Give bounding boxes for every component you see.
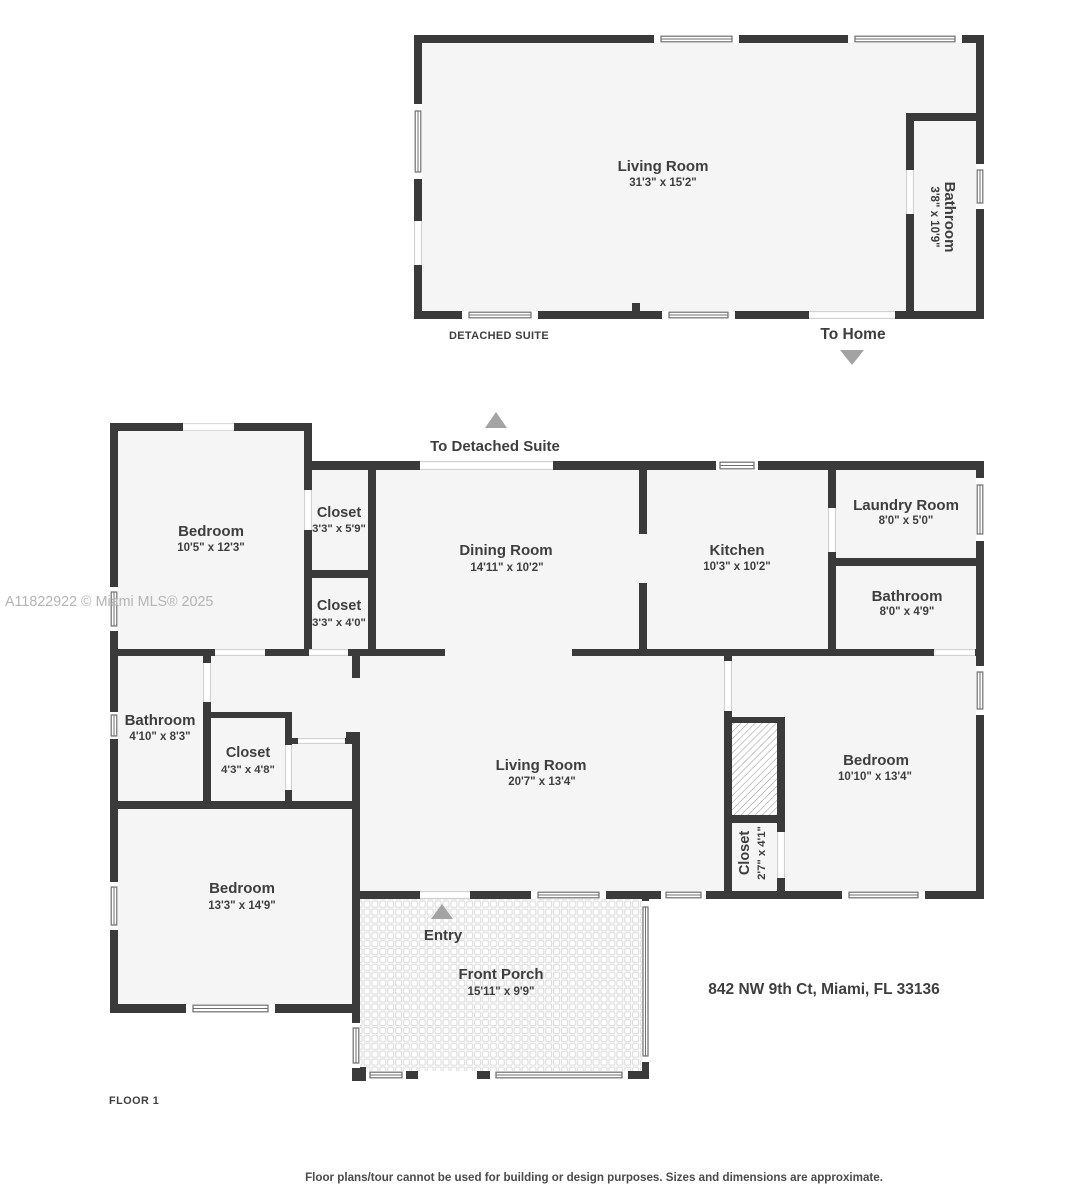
- svg-text:10'10" x 13'4": 10'10" x 13'4": [838, 771, 912, 783]
- svg-text:Bedroom: Bedroom: [209, 880, 275, 897]
- svg-text:Living Room: Living Room: [496, 757, 587, 774]
- svg-text:4'3" x 4'8": 4'3" x 4'8": [221, 764, 275, 776]
- svg-text:Kitchen: Kitchen: [709, 542, 764, 559]
- svg-text:To Home: To Home: [820, 326, 886, 343]
- svg-text:Dining Room: Dining Room: [459, 542, 552, 559]
- svg-text:3'8" x 10'9": 3'8" x 10'9": [928, 186, 940, 247]
- svg-text:Bathroom: Bathroom: [872, 588, 943, 605]
- svg-text:3'3" x 5'9": 3'3" x 5'9": [312, 523, 366, 535]
- svg-text:Laundry Room: Laundry Room: [853, 497, 959, 514]
- svg-text:Closet: Closet: [737, 831, 753, 875]
- svg-text:2'7" x 4'1": 2'7" x 4'1": [756, 826, 768, 880]
- svg-text:Entry: Entry: [424, 927, 463, 944]
- svg-text:13'3" x 14'9": 13'3" x 14'9": [208, 900, 276, 912]
- svg-text:10'5" x 12'3": 10'5" x 12'3": [177, 542, 245, 554]
- svg-text:20'7" x 13'4": 20'7" x 13'4": [508, 776, 576, 788]
- svg-text:Bathroom: Bathroom: [941, 182, 958, 253]
- svg-text:Bedroom: Bedroom: [843, 752, 909, 769]
- svg-text:15'11" x 9'9": 15'11" x 9'9": [468, 986, 535, 998]
- svg-text:Closet: Closet: [317, 505, 361, 521]
- svg-text:8'0" x 4'9": 8'0" x 4'9": [880, 606, 935, 618]
- svg-text:4'10" x 8'3": 4'10" x 8'3": [129, 731, 190, 743]
- svg-text:14'11" x 10'2": 14'11" x 10'2": [470, 562, 543, 574]
- svg-text:3'3" x 4'0": 3'3" x 4'0": [312, 617, 366, 629]
- svg-text:Front Porch: Front Porch: [459, 966, 544, 983]
- svg-text:842 NW 9th Ct, Miami, FL 33136: 842 NW 9th Ct, Miami, FL 33136: [708, 981, 940, 998]
- svg-text:Closet: Closet: [226, 745, 270, 761]
- svg-text:FLOOR 1: FLOOR 1: [109, 1095, 159, 1107]
- svg-text:31'3" x 15'2": 31'3" x 15'2": [629, 177, 697, 189]
- svg-text:Bedroom: Bedroom: [178, 523, 244, 540]
- svg-text:To Detached Suite: To Detached Suite: [430, 438, 560, 455]
- svg-text:Floor plans/tour cannot be use: Floor plans/tour cannot be used for buil…: [305, 1171, 883, 1184]
- svg-text:A11822922 © Miami MLS® 2025: A11822922 © Miami MLS® 2025: [5, 594, 213, 610]
- svg-text:DETACHED SUITE: DETACHED SUITE: [449, 330, 549, 342]
- svg-text:Closet: Closet: [317, 598, 361, 614]
- svg-text:8'0" x 5'0": 8'0" x 5'0": [879, 515, 934, 527]
- svg-text:Living Room: Living Room: [618, 158, 709, 175]
- svg-text:10'3" x 10'2": 10'3" x 10'2": [703, 561, 771, 573]
- svg-text:Bathroom: Bathroom: [125, 712, 196, 729]
